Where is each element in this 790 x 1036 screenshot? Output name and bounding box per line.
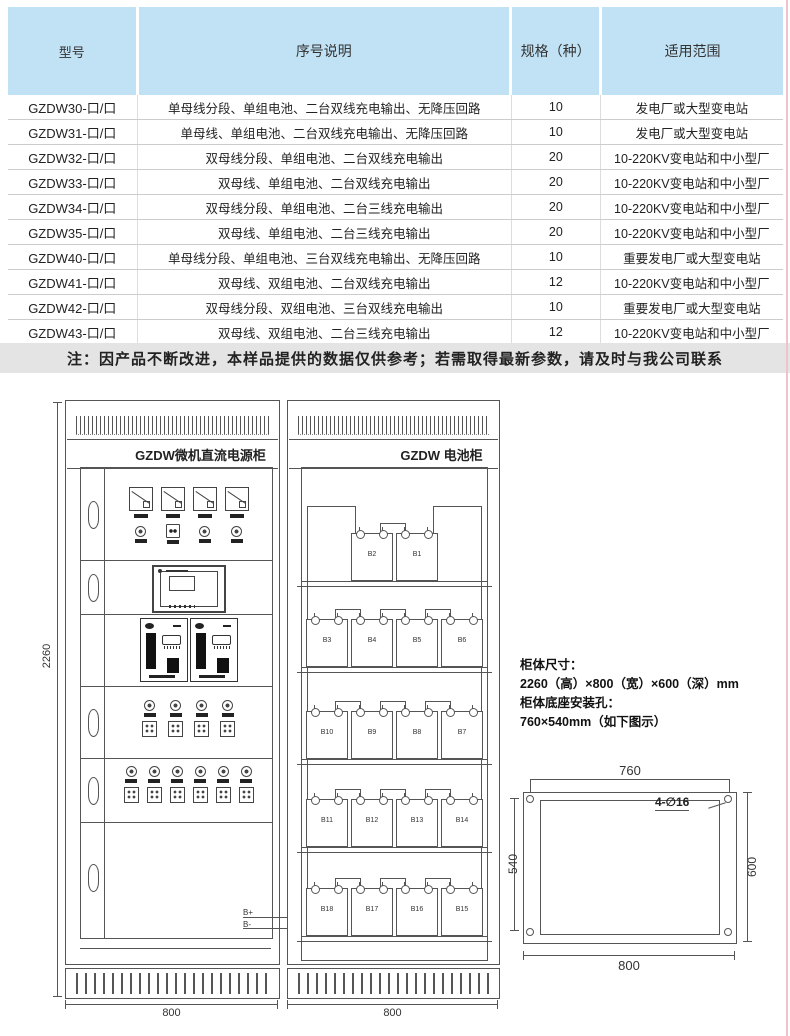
spec-count-cell: 10 [512,295,601,319]
meter-unit [126,487,156,544]
battery-terminal [424,885,433,894]
battery-terminal [424,708,433,717]
battery-terminal [469,796,478,805]
battery-label: B10 [307,729,347,736]
battery-label: B15 [442,906,482,913]
charger-panel [105,614,272,686]
battery-terminal [379,708,388,717]
cabinet-door: B+ B- [105,822,272,938]
model-cell: GZDW41-口/口 [8,270,138,294]
page-right-border [786,0,788,1036]
dim-800-right: 800 [287,1007,498,1019]
dim-800-left: 800 [65,1007,278,1019]
battery-shelf: B2B1 [302,535,487,582]
battery-shelf: B10B9B8B7 [302,713,487,760]
battery-cabinet-title: GZDW 电池柜 [289,439,498,469]
range-cell: 发电厂或大型变电站 [601,95,783,119]
battery-label: B7 [442,729,482,736]
battery-label: B5 [397,637,437,644]
spec-count-cell: 20 [512,220,601,244]
breaker-switch [141,700,159,758]
battery-terminal [424,530,433,539]
battery-terminal [356,885,365,894]
battery-terminal [401,616,410,625]
battery-terminal [469,616,478,625]
battery-cell: B10 [306,711,348,759]
battery-terminal [356,796,365,805]
spec-count-cell: 10 [512,95,601,119]
plinth-vent [65,968,280,999]
spec-line: 柜体尺寸： [520,656,760,675]
battery-label: B1 [397,551,437,558]
spec-count-cell: 12 [512,320,601,344]
mounting-hole [526,795,534,803]
battery-cell: B13 [396,799,438,847]
battery-terminal [334,885,343,894]
battery-terminal [401,796,410,805]
battery-terminal [356,708,365,717]
battery-label: B8 [397,729,437,736]
description-cell: 双母线、单组电池、二台双线充电输出 [138,170,513,194]
table-header-row: 型号序号说明规格（种）适用范围 [8,7,783,95]
battery-terminal [379,796,388,805]
dim-600: 600 [745,852,759,882]
height-dim-line [57,402,58,997]
battery-label: B11 [307,817,347,824]
model-cell: GZDW43-口/口 [8,320,138,344]
spec-line: 760×540mm（如下图示） [520,713,760,732]
mounting-hole [526,928,534,936]
battery-cell: B4 [351,619,393,667]
battery-terminal [446,796,455,805]
description-cell: 双母线、单组电池、二台三线充电输出 [138,220,513,244]
meter-gauge [161,487,185,511]
battery-label: B12 [352,817,392,824]
spec-count-cell: 10 [512,245,601,269]
door-handle [88,864,99,892]
door-handle [88,709,99,737]
door-handle [88,777,99,805]
battery-terminal [379,530,388,539]
battery-terminal [424,616,433,625]
battery-label: B4 [352,637,392,644]
battery-cell: B6 [441,619,483,667]
breaker-panel-6 [105,758,272,822]
battery-label: B13 [397,817,437,824]
meter-unit [158,487,188,544]
battery-cabinet-interior: B2B1 B3B4B5B6 B10B9B8B7 B11B12B13B14 B18… [301,467,488,961]
battery-cell: B11 [306,799,348,847]
battery-cell: B9 [351,711,393,759]
power-cabinet-body: B+ B- [80,467,273,939]
range-cell: 10-220KV变电站和中小型厂 [601,195,783,219]
description-cell: 双母线分段、单组电池、二台双线充电输出 [138,145,513,169]
battery-terminal [379,616,388,625]
charger-module [190,618,238,682]
meter-panel [105,468,272,560]
column-header: 序号说明 [139,7,513,95]
table-row: GZDW30-口/口 单母线分段、单组电池、二台双线充电输出、无降压回路 10 … [8,95,783,120]
battery-label: B2 [352,551,392,558]
spec-count-cell: 20 [512,195,601,219]
range-cell: 重要发电厂或大型变电站 [601,295,783,319]
breaker-panel-4 [105,686,272,758]
meter-unit [190,487,220,544]
spec-count-cell: 12 [512,270,601,294]
breaker-switch [219,700,237,758]
battery-cell: B14 [441,799,483,847]
battery-cell: B8 [396,711,438,759]
battery-cell: B1 [396,533,438,581]
note-bar: 注：因产品不断改进，本样品提供的数据仅供参考；若需取得最新参数，请及时与我公司联… [0,343,790,373]
breaker-switch [145,766,163,822]
breaker-switch [191,766,209,822]
breaker-switch [214,766,232,822]
battery-terminal [311,885,320,894]
model-cell: GZDW31-口/口 [8,120,138,144]
battery-terminal [424,796,433,805]
spec-count-cell: 20 [512,170,601,194]
range-cell: 10-220KV变电站和中小型厂 [601,320,783,344]
range-cell: 10-220KV变电站和中小型厂 [601,145,783,169]
table-row: GZDW40-口/口 单母线分段、单组电池、三台双线充电输出、无降压回路 10 … [8,245,783,270]
battery-terminal [311,616,320,625]
power-cabinet-title: GZDW微机直流电源柜 [67,439,278,469]
table-row: GZDW33-口/口 双母线、单组电池、二台双线充电输出 20 10-220KV… [8,170,783,195]
fan-icon [145,623,154,629]
width-dim-power: 800 [65,1004,278,1019]
door-handle [88,574,99,602]
cabinet-specs-text: 柜体尺寸：2260（高）×800（宽）×600（深）mm柜体底座安装孔：760×… [520,656,760,732]
battery-terminal [311,796,320,805]
mounting-hole [724,928,732,936]
battery-terminal [401,885,410,894]
breaker-switch [167,700,185,758]
battery-terminal [334,796,343,805]
breaker-switch [122,766,140,822]
battery-terminal [446,616,455,625]
description-cell: 单母线分段、单组电池、二台双线充电输出、无降压回路 [138,95,513,119]
indicator-light [199,526,210,537]
description-cell: 单母线分段、单组电池、三台双线充电输出、无降压回路 [138,245,513,269]
model-cell: GZDW34-口/口 [8,195,138,219]
base-inner-outline [540,800,720,935]
battery-label: B17 [352,906,392,913]
meter-gauge [129,487,153,511]
table-row: GZDW35-口/口 双母线、单组电池、二台三线充电输出 20 10-220KV… [8,220,783,245]
battery-terminal [401,708,410,717]
spec-count-cell: 20 [512,145,601,169]
battery-terminal [334,616,343,625]
dim-760: 760 [530,763,730,778]
breaker-switch [168,766,186,822]
battery-shelf: B18B17B16B15 [302,890,487,937]
column-header: 适用范围 [602,7,783,95]
fan-icon [195,623,204,629]
model-cell: GZDW35-口/口 [8,220,138,244]
battery-label: B3 [307,637,347,644]
page: 型号序号说明规格（种）适用范围 GZDW30-口/口 单母线分段、单组电池、二台… [0,0,790,1036]
meter-gauge [193,487,217,511]
battery-cell: B12 [351,799,393,847]
dim-540: 540 [506,849,520,879]
range-cell: 10-220KV变电站和中小型厂 [601,170,783,194]
range-cell: 10-220KV变电站和中小型厂 [601,270,783,294]
spec-line: 柜体底座安装孔： [520,694,760,713]
battery-shelf: B11B12B13B14 [302,801,487,848]
mounting-hole-diagram: 760 4-∅16 540 600 800 [505,765,775,980]
width-dim-battery: 800 [287,1004,498,1019]
battery-terminal [469,885,478,894]
plinth-vent [287,968,500,999]
battery-label: B9 [352,729,392,736]
battery-cell: B16 [396,888,438,936]
battery-cell: B3 [306,619,348,667]
table-row: GZDW32-口/口 双母线分段、单组电池、二台双线充电输出 20 10-220… [8,145,783,170]
spec-line: 2260（高）×800（宽）×600（深）mm [520,675,760,694]
model-cell: GZDW42-口/口 [8,295,138,319]
column-header: 规格（种） [512,7,602,95]
battery-terminal [379,885,388,894]
battery-terminal [401,530,410,539]
table-row: GZDW41-口/口 双母线、双组电池、二台双线充电输出 12 10-220KV… [8,270,783,295]
selector-switch [166,524,180,538]
description-cell: 双母线、双组电池、二台双线充电输出 [138,270,513,294]
indicator-light [231,526,242,537]
table-row: GZDW34-口/口 双母线分段、单组电池、二台三线充电输出 20 10-220… [8,195,783,220]
dim-800-bottom: 800 [523,958,735,973]
model-cell: GZDW32-口/口 [8,145,138,169]
range-cell: 10-220KV变电站和中小型厂 [601,220,783,244]
indicator-light [135,526,146,537]
battery-cabinet: GZDW 电池柜 B2B1 B3B4B5B6 B10B9B8B7 B11B12B… [287,400,500,965]
battery-cell: B7 [441,711,483,759]
battery-shelf: B3B4B5B6 [302,621,487,668]
feeder-wire [434,506,482,507]
battery-label: B16 [397,906,437,913]
spec-count-cell: 10 [512,120,601,144]
battery-terminal [446,885,455,894]
range-cell: 重要发电厂或大型变电站 [601,245,783,269]
monitor-panel [105,560,272,614]
meter-unit [222,487,252,544]
table-row: GZDW31-口/口 单母线、单组电池、二台双线充电输出、无降压回路 10 发电… [8,120,783,145]
breaker-switch [237,766,255,822]
model-cell: GZDW40-口/口 [8,245,138,269]
description-cell: 单母线、单组电池、二台双线充电输出、无降压回路 [138,120,513,144]
note-text: 注：因产品不断改进，本样品提供的数据仅供参考；若需取得最新参数，请及时与我公司联… [67,348,723,369]
monitor-display [152,565,226,613]
table-body: GZDW30-口/口 单母线分段、单组电池、二台双线充电输出、无降压回路 10 … [8,95,783,345]
dim-2260: 2260 [41,639,53,673]
door-handle [88,501,99,529]
battery-cell: B15 [441,888,483,936]
battery-terminal [311,708,320,717]
breaker-switch [193,700,211,758]
battery-label: B14 [442,817,482,824]
feeder-wire [307,506,355,507]
battery-cell: B17 [351,888,393,936]
battery-terminal [356,616,365,625]
battery-cell: B2 [351,533,393,581]
battery-cell: B18 [306,888,348,936]
description-cell: 双母线分段、单组电池、二台三线充电输出 [138,195,513,219]
battery-terminal [334,708,343,717]
vent-grille [76,416,269,435]
model-cell: GZDW33-口/口 [8,170,138,194]
spec-table: 型号序号说明规格（种）适用范围 GZDW30-口/口 单母线分段、单组电池、二台… [8,7,783,345]
vent-grille [298,416,489,435]
battery-label: B18 [307,906,347,913]
battery-terminal [356,530,365,539]
bplus-label: B+ [243,908,253,917]
power-cabinet: GZDW微机直流电源柜 [65,400,280,965]
range-cell: 发电厂或大型变电站 [601,120,783,144]
battery-terminal [446,708,455,717]
model-cell: GZDW30-口/口 [8,95,138,119]
charger-module [140,618,188,682]
description-cell: 双母线分段、双组电池、三台双线充电输出 [138,295,513,319]
table-row: GZDW43-口/口 双母线、双组电池、二台三线充电输出 12 10-220KV… [8,320,783,345]
column-header: 型号 [8,7,139,95]
battery-cell: B5 [396,619,438,667]
battery-label: B6 [442,637,482,644]
description-cell: 双母线、双组电池、二台三线充电输出 [138,320,513,344]
holes-label: 4-∅16 [655,795,689,811]
battery-terminal [469,708,478,717]
meter-gauge [225,487,249,511]
table-row: GZDW42-口/口 双母线分段、双组电池、三台双线充电输出 10 重要发电厂或… [8,295,783,320]
